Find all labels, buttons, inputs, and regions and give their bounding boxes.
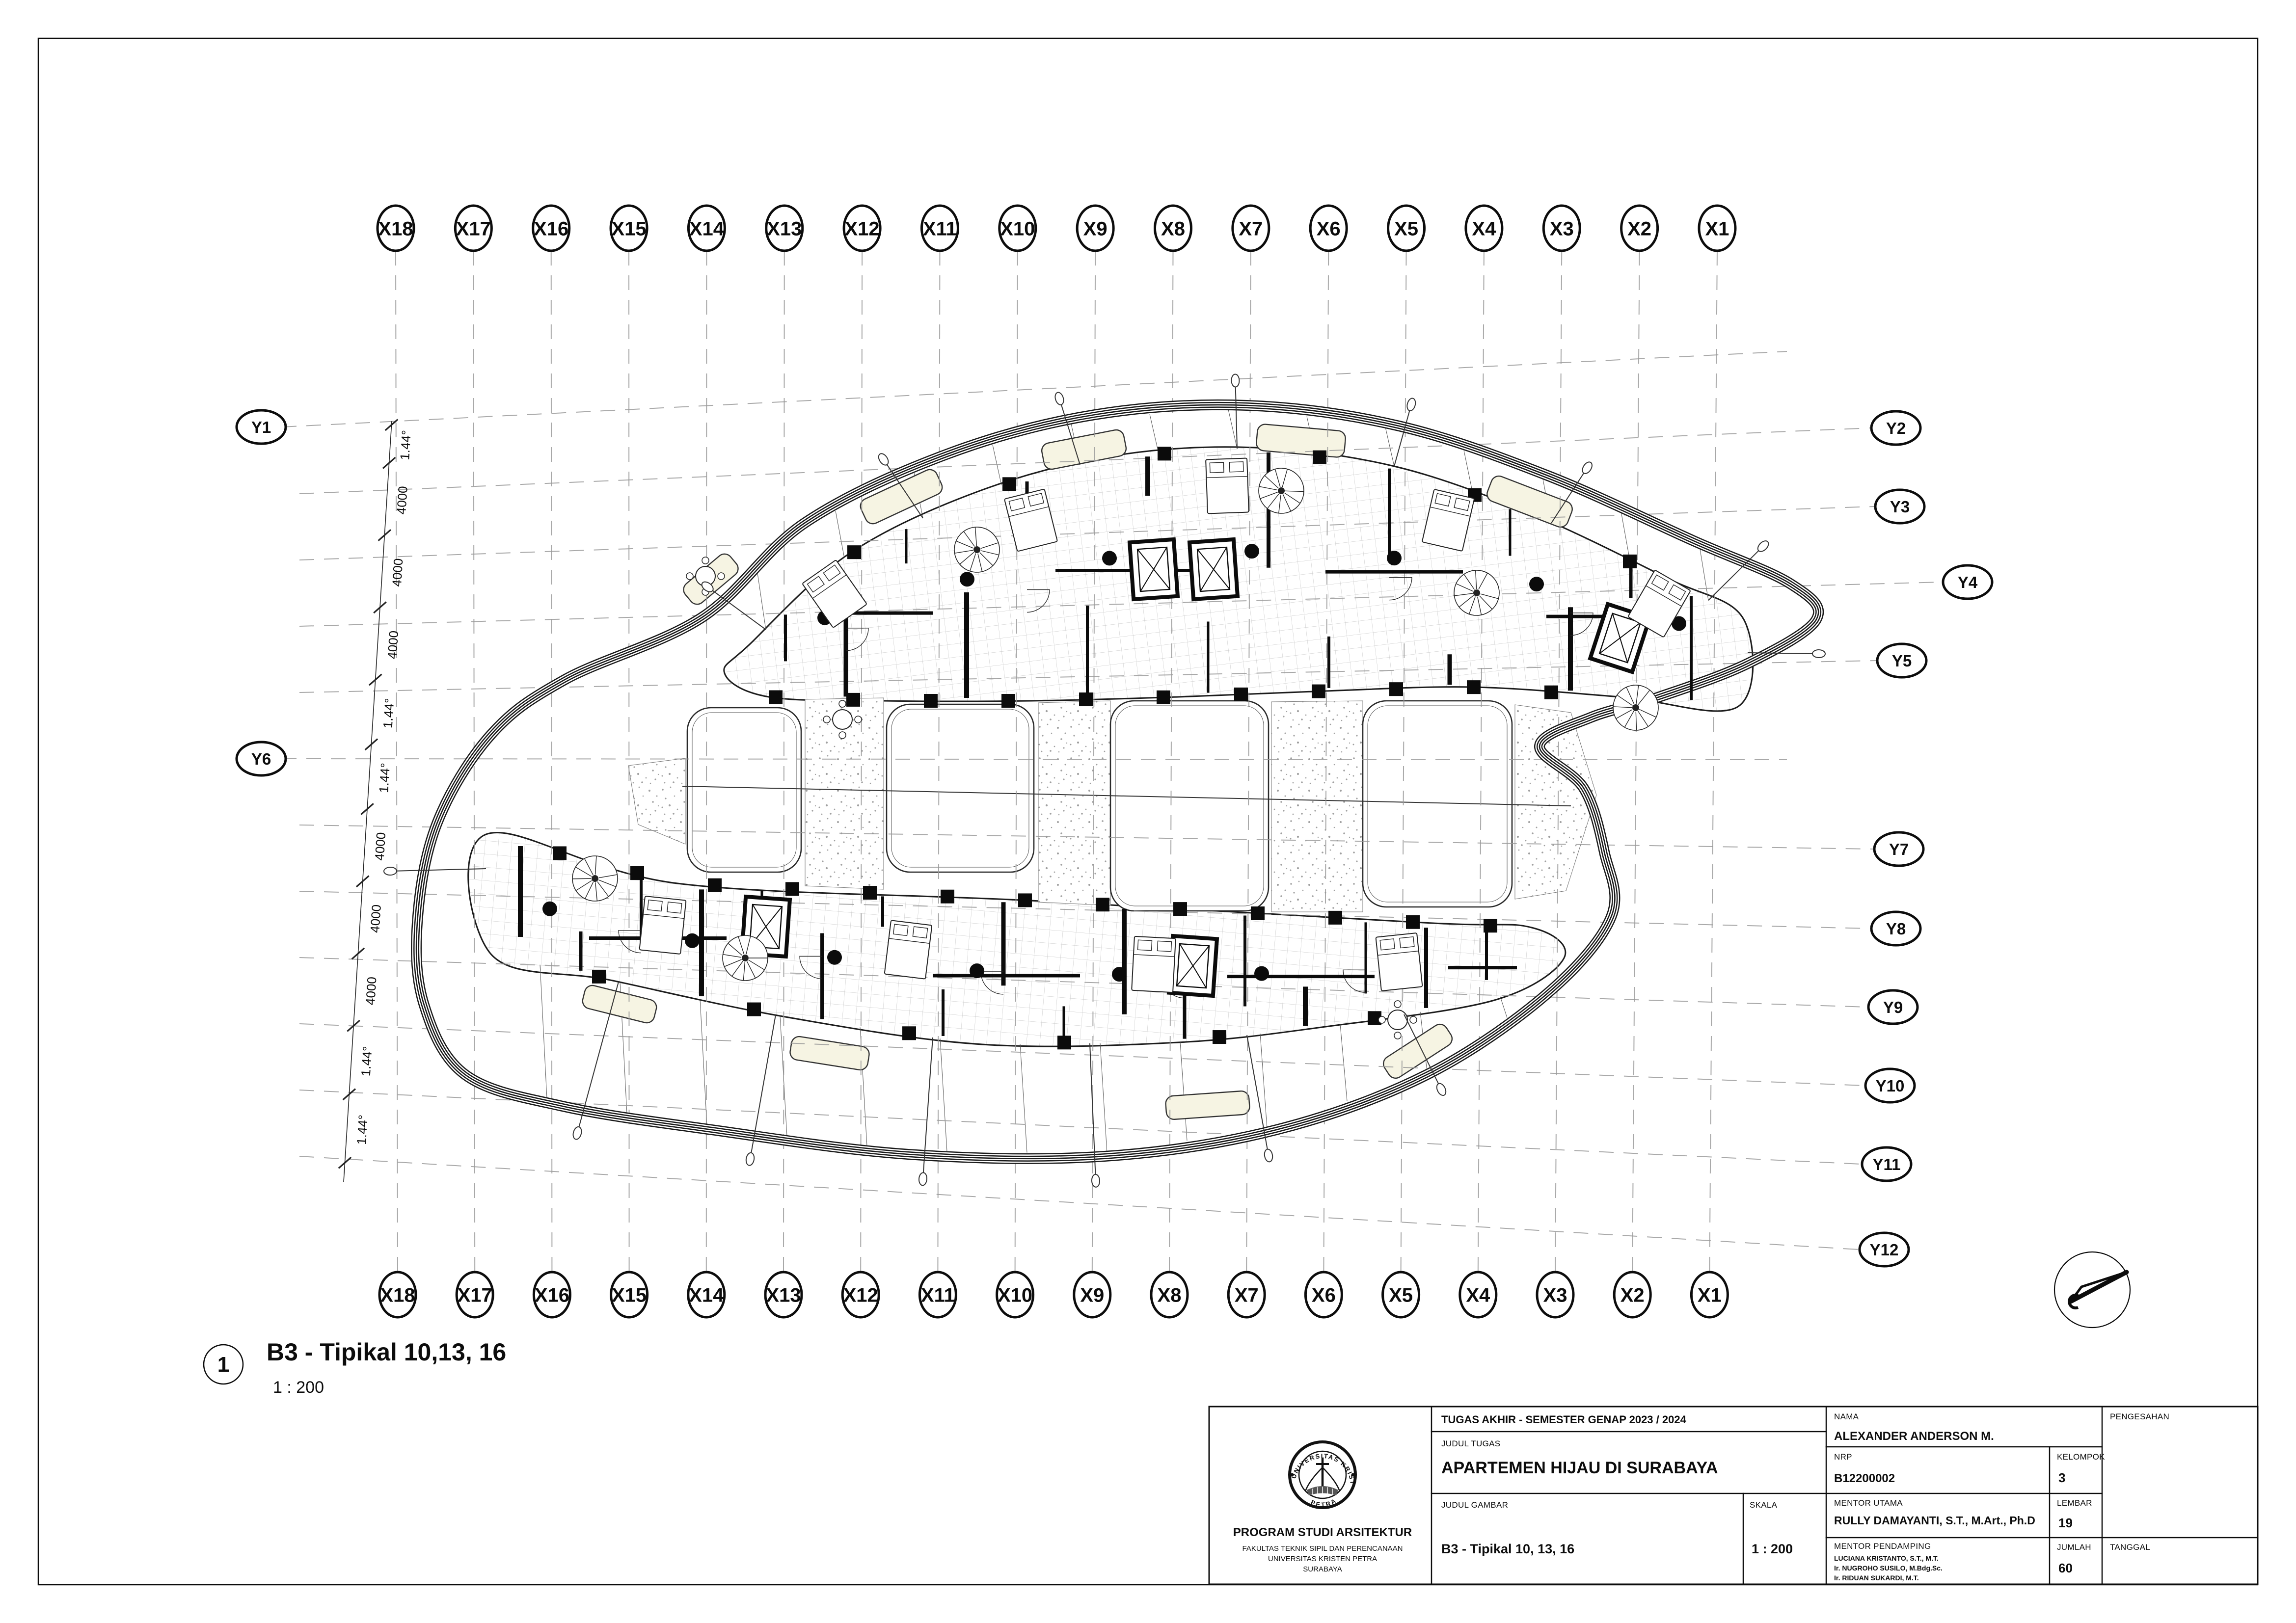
grid-bubble-label: X2 (1627, 218, 1651, 239)
wall-block (924, 694, 938, 708)
bed-frame (885, 920, 932, 979)
lembar-value: 19 (2058, 1516, 2073, 1530)
wall-block (1313, 451, 1326, 464)
table-chair (1394, 1032, 1401, 1039)
wall-block (1002, 477, 1016, 491)
judul-gambar-value: B3 - Tipikal 10, 13, 16 (1441, 1542, 1574, 1556)
dimension-label: 4000 (363, 976, 379, 1006)
grid-bubble-label: X1 (1698, 1284, 1722, 1306)
grid-bubble-label: X7 (1235, 1284, 1259, 1306)
column-dot (542, 902, 557, 916)
wall-block (1057, 1036, 1071, 1049)
wall-block (1096, 898, 1109, 911)
wall-block (1157, 691, 1170, 704)
grid-bubble-label: X14 (689, 1284, 724, 1306)
balcony-spoke-tip (572, 1126, 583, 1140)
wall-block (1312, 685, 1325, 698)
courtyard-void (887, 704, 1034, 872)
grid-bubble-label: X17 (458, 1284, 492, 1306)
dimension-label: 4000 (389, 558, 406, 587)
skala-label: SKALA (1750, 1500, 1778, 1510)
grid-bubble-label: Y1 (251, 418, 271, 436)
mentor-pendamping-3: Ir. RIDUAN SUKARDI, M.T. (1834, 1574, 1919, 1582)
mentor-utama-value: RULLY DAMAYANTI, S.T., M.Art., Ph.D (1834, 1514, 2035, 1527)
bed-symbol (885, 920, 932, 979)
grid-bubble-label: X13 (766, 1284, 801, 1306)
stipple-terrace (1271, 701, 1363, 912)
bed-symbol (639, 896, 686, 954)
grid-bubble-label: Y3 (1890, 498, 1910, 516)
grid-bubble-label: X5 (1389, 1284, 1413, 1306)
dimension-string: 1.44°4000400040001.44°1.44°4000400040001… (339, 420, 414, 1182)
grid-line-x (396, 251, 398, 1272)
wall-block (708, 878, 722, 892)
bed-symbol (1206, 458, 1249, 514)
wall-block (553, 846, 567, 860)
grid-bubble-label: X10 (998, 1284, 1032, 1306)
titleblock-header: TUGAS AKHIR - SEMESTER GENAP 2023 / 2024 (1441, 1413, 1687, 1426)
wall-block (1018, 893, 1032, 907)
grid-bubble-label: X18 (380, 1284, 415, 1306)
wall-block (1213, 1030, 1226, 1044)
dimension-label: 1.44° (397, 430, 414, 461)
grid-bubble-label: X7 (1239, 218, 1263, 239)
table-chair (702, 557, 709, 564)
bed-frame (1206, 458, 1249, 514)
grid-bubble-label: X8 (1158, 1284, 1182, 1306)
mentor-pendamping-1: LUCIANA KRISTANTO, S.T., M.T. (1834, 1554, 1939, 1562)
skala-value: 1 : 200 (1752, 1542, 1793, 1556)
grid-bubble-label: X6 (1317, 218, 1341, 239)
wall-block (1406, 915, 1420, 929)
wall-block (1234, 688, 1248, 701)
balcony-spoke-tip (745, 1152, 755, 1166)
table-chair (686, 573, 693, 580)
balcony-spoke-tip (1580, 460, 1594, 476)
university-name: UNIVERSITAS KRISTEN PETRA (1268, 1555, 1377, 1563)
table-chair (855, 716, 862, 723)
kelompok-value: 3 (2058, 1470, 2065, 1485)
grid-bubble-label: X11 (923, 218, 957, 239)
grid-bubble-label: X9 (1080, 1284, 1104, 1306)
grid-bubble-label: X12 (845, 218, 880, 239)
spiral-post (742, 955, 749, 961)
balcony-spoke-tip (1435, 1082, 1448, 1097)
wall-block (1544, 686, 1558, 699)
grid-bubble-label: X6 (1312, 1284, 1336, 1306)
bed-frame (1376, 933, 1422, 991)
grid-bubble-label: Y9 (1883, 998, 1903, 1016)
column-dot (1244, 544, 1259, 559)
grid-line-x (1632, 251, 1639, 1272)
judul-gambar-label: JUDUL GAMBAR (1441, 1500, 1508, 1510)
program-name: PROGRAM STUDI ARSITEKTUR (1233, 1526, 1412, 1539)
dimension-label: 1.44° (354, 1115, 371, 1145)
mentor-utama-label: MENTOR UTAMA (1834, 1498, 1903, 1508)
faculty-name: FAKULTAS TEKNIK SIPIL DAN PERENCANAAN (1242, 1544, 1403, 1553)
dimension-label: 4000 (385, 630, 402, 660)
grid-line-x (1709, 251, 1717, 1272)
lembar-label: LEMBAR (2057, 1498, 2092, 1508)
balcony-pad (1165, 1091, 1250, 1120)
table-chair (823, 716, 830, 723)
grid-bubble-label: X4 (1466, 1284, 1490, 1306)
balcony-spoke-tip (1406, 398, 1417, 412)
dimension-label: 1.44° (358, 1046, 375, 1077)
column-dot (1254, 966, 1269, 981)
wall-block (1173, 902, 1187, 916)
drawing-scale: 1 : 200 (273, 1378, 324, 1397)
dimension-label: 4000 (367, 904, 384, 933)
stair-elevator-core (1169, 936, 1217, 996)
grid-bubble-label: X4 (1472, 218, 1496, 239)
table-top (1388, 1010, 1407, 1030)
grid-bubble-label: X14 (689, 218, 725, 239)
wall-block (1484, 919, 1497, 932)
mentor-pendamping-2: Ir. NUGROHO SUSILO, M.Bdg.Sc. (1834, 1564, 1943, 1572)
bed-frame (639, 896, 686, 954)
dimension-label: 4000 (372, 832, 389, 861)
grid-bubble-label: Y2 (1886, 419, 1906, 437)
wall-block (941, 890, 954, 904)
wall-block (747, 1003, 761, 1016)
nrp-value: B12200002 (1834, 1472, 1895, 1485)
balcony-spoke-tip (1053, 391, 1065, 406)
balcony-spoke-tip (384, 867, 397, 876)
balcony-spoke-tip (1091, 1174, 1100, 1187)
tanggal-label: TANGGAL (2110, 1543, 2150, 1552)
pengesahan-label: PENGESAHAN (2110, 1412, 2169, 1421)
north-arrow-icon (2054, 1252, 2130, 1328)
grid-bubble-label: Y8 (1886, 920, 1906, 938)
grid-line-y (282, 351, 1787, 427)
judul-tugas-value: APARTEMEN HIJAU DI SURABAYA (1441, 1459, 1718, 1477)
wall-block (1623, 555, 1637, 568)
column-dot (827, 950, 842, 965)
table-chair (718, 573, 725, 580)
wall-block (847, 545, 861, 559)
table-chair (1410, 1016, 1417, 1023)
wall-block (1251, 906, 1265, 920)
grid-bubble-label: Y7 (1889, 840, 1909, 858)
drawing-title: B3 - Tipikal 10,13, 16 (267, 1338, 506, 1366)
wall-block (902, 1026, 916, 1040)
table-chair (839, 732, 846, 739)
table-top (833, 710, 852, 729)
column-dot (1529, 577, 1544, 591)
grid-bubble-label: X3 (1550, 218, 1574, 239)
wall-block (630, 866, 644, 880)
wall-block (1079, 692, 1093, 706)
grid-bubble-label: Y11 (1873, 1155, 1901, 1173)
grid-bubble-label: X10 (1000, 218, 1035, 239)
jumlah-label: JUMLAH (2057, 1543, 2091, 1552)
grid-bubble-label: X13 (767, 218, 802, 239)
column-dot (1387, 551, 1402, 565)
balcony-spoke-tip (877, 452, 891, 467)
stair-elevator-core (1189, 539, 1238, 599)
table-chair (839, 700, 846, 707)
floor-plan-base (416, 405, 1818, 1159)
wall-block (1328, 911, 1342, 925)
kelompok-label: KELOMPOK (2057, 1452, 2105, 1462)
column-dot (960, 572, 974, 586)
dimension-label: 1.44° (376, 763, 393, 794)
column-dot (685, 933, 700, 948)
viewport-number: 1 (217, 1353, 229, 1377)
drawing-sheet: X18X18X17X17X16X16X15X15X14X14X13X13X12X… (0, 0, 2296, 1623)
wall-block (846, 693, 860, 707)
table-chair (1378, 1016, 1385, 1023)
dimension-label: 1.44° (380, 698, 397, 729)
wall-block (1158, 447, 1171, 460)
grid-bubble-label: Y5 (1892, 652, 1912, 670)
balcony-spoke-tip (918, 1172, 927, 1186)
column-dot (1102, 551, 1117, 565)
column-dot (1112, 967, 1127, 982)
wall-block (1001, 694, 1015, 708)
balcony-spoke-tip (1812, 650, 1825, 658)
city-name: SURABAYA (1303, 1565, 1342, 1573)
grid-bubble-label: X3 (1543, 1284, 1567, 1306)
grid-bubble-label: X16 (534, 218, 568, 239)
grid-bubble-label: X15 (611, 218, 646, 239)
bed-symbol (1132, 936, 1176, 992)
grid-bubble-label: X15 (612, 1284, 647, 1306)
grid-bubble-label: X11 (921, 1284, 955, 1306)
wall-block (1467, 680, 1481, 694)
jumlah-value: 60 (2058, 1561, 2073, 1575)
grid-bubble-label: Y4 (1958, 573, 1978, 591)
table-chair (1394, 1001, 1401, 1008)
courtyard-void (1110, 701, 1269, 911)
wall-block (1389, 682, 1403, 696)
nrp-label: NRP (1834, 1452, 1852, 1462)
column-dot (970, 963, 984, 978)
bed-symbol (1376, 933, 1422, 991)
nama-value: ALEXANDER ANDERSON M. (1834, 1430, 1994, 1443)
grid-bubble-label: X18 (378, 218, 413, 239)
stair-elevator-core (1130, 539, 1178, 599)
grid-bubble-label: Y12 (1870, 1241, 1899, 1259)
mentor-pendamping-label: MENTOR PENDAMPING (1834, 1542, 1931, 1551)
grid-bubble-label: X17 (456, 218, 491, 239)
grid-bubble-label: X12 (843, 1284, 878, 1306)
judul-tugas-label: JUDUL TUGAS (1441, 1439, 1500, 1448)
drawing-title-group: 1 B3 - Tipikal 10,13, 16 1 : 200 (204, 1338, 506, 1397)
wall-block (769, 690, 783, 704)
nama-label: NAMA (1834, 1412, 1859, 1421)
grid-line-y (299, 1156, 1859, 1250)
grid-bubble-label: X2 (1621, 1284, 1645, 1306)
balcony-spoke-tip (1231, 374, 1240, 387)
stipple-terrace (1038, 701, 1110, 905)
grid-bubble-label: X16 (535, 1284, 569, 1306)
dimension-label: 4000 (394, 485, 410, 515)
grid-bubble-label: X1 (1705, 218, 1729, 239)
wall-block (592, 970, 606, 984)
wall-block (863, 886, 877, 900)
grid-bubble-label: X8 (1161, 218, 1185, 239)
spiral-stair (723, 935, 768, 981)
balcony-spoke-tip (1264, 1148, 1273, 1162)
grid-bubble-label: Y6 (251, 750, 271, 768)
wall-block (785, 882, 799, 896)
grid-bubble-label: X9 (1083, 218, 1107, 239)
grid-bubble-label: Y10 (1876, 1077, 1905, 1095)
grid-bubble-label: X5 (1394, 218, 1418, 239)
